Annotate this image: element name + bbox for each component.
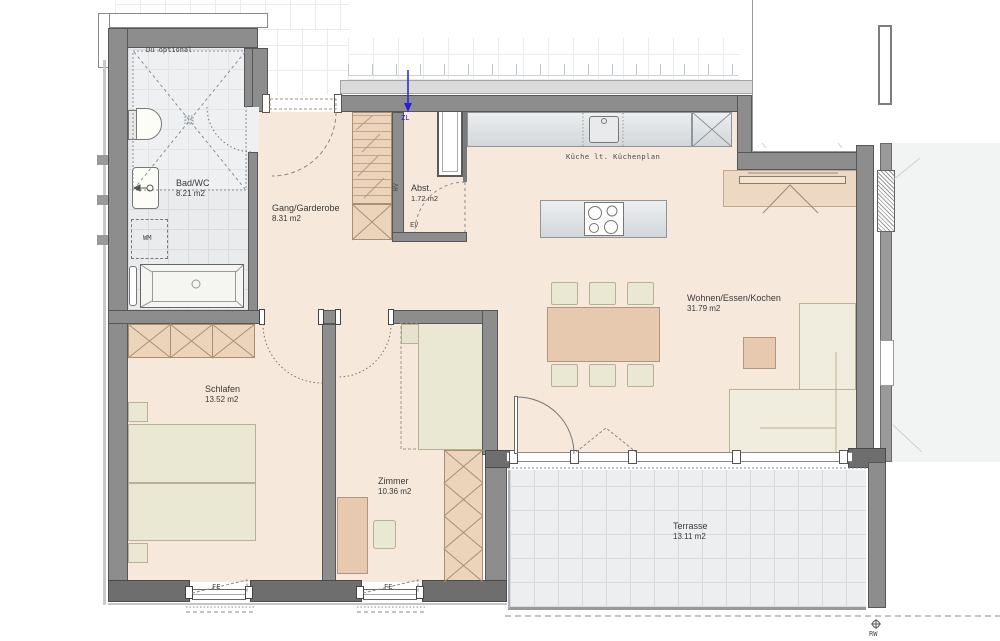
rw-symbol [871,619,881,629]
schlafen-wardrobe-3 [212,324,255,358]
fe-window-2-mid [363,594,417,595]
facade-edge-band [340,80,754,94]
glass-mullion [839,450,848,464]
floor-plan: Du optional Bad/WC 8.21 m2 WM Gang/Garde… [0,0,1000,641]
room-name: Bad/WC [176,178,210,189]
zimmer-door-post [335,309,341,325]
schlafen-door-opening [262,310,322,324]
room-name: Terrasse [673,521,708,532]
kitchen-counter [467,112,692,147]
bath-radiator [129,266,137,306]
wall-bottom-3 [422,580,507,602]
zimmer-door-opening [338,310,392,324]
nightstand [128,543,148,563]
gang-wardrobe-shelves [352,112,392,204]
entry-door-opening [266,95,338,112]
wall-right [856,145,874,465]
dining-table [547,307,660,362]
glass-mullion [732,450,741,464]
facade-tick-strip [348,64,738,76]
wall-abst-bottom [392,232,467,242]
recess-white [752,0,856,152]
room-area: 1.72 m2 [411,194,438,203]
desk [337,497,368,574]
kitchen-cabinet-x [692,112,732,147]
room-name: Zimmer [378,476,411,487]
zimmer-bed [418,322,484,450]
terrace-door-leaf [514,396,518,454]
entry-door-post-left [262,94,270,113]
sofa-seat [729,389,856,453]
double-bed-bottom [128,483,256,541]
room-area: 13.11 m2 [673,532,708,542]
schlafen-door-post [318,309,324,325]
bad-label: Bad/WC 8.21 m2 [176,178,210,199]
bathtub-inner [152,271,236,302]
kueche-label: Küche lt. Küchenplan [566,153,660,162]
bottom-facade-line [108,603,507,605]
fe-window-post [185,586,193,599]
gang-label: Gang/Garderobe 8.31 m2 [272,203,340,224]
rw-label: RW [869,630,877,639]
room-name: Abst. [411,183,438,194]
wm-label: WM [143,234,151,243]
room-name: Schlafen [205,384,240,395]
chair [627,364,654,387]
wall-recess-bottom [737,152,858,170]
fe2-label: FE [384,583,392,592]
du-optional-label: Du optional [146,46,192,55]
glass-mullion [628,450,637,464]
wall-interior-h-left [108,310,262,324]
fe-window-post [356,586,364,599]
entry-door-post-right [334,94,342,113]
double-bed-top [128,424,256,483]
schlafen-label: Schlafen 13.52 m2 [205,384,240,405]
neighbor-door-frame [880,340,894,386]
wall-recess-left [737,95,752,160]
fe-window-post [416,586,424,599]
room-area: 8.21 m2 [176,189,210,199]
coffee-table [743,337,776,369]
fe-window-post [245,586,253,599]
ev-label: EV [410,221,418,230]
schlafen-door-post [259,309,265,325]
room-area: 10.36 m2 [378,487,411,497]
abst-label: Abst. 1.72 m2 [411,183,438,204]
wohnen-label: Wohnen/Essen/Kochen 31.79 m2 [687,293,781,314]
wall-abst-right-thin [463,112,467,182]
hv-label: HV [392,183,401,191]
zl-label: ZL [401,114,409,123]
room-area: 31.79 m2 [687,304,781,314]
desk-chair [373,520,396,549]
schlafen-wardrobe-2 [170,324,213,358]
wall-abst-left [392,112,404,242]
nightstand [128,402,148,422]
terrasse-label: Terrasse 13.11 m2 [673,521,708,542]
gang-wardrobe-box [352,204,392,240]
glass-mullion [570,450,579,464]
neighbor-floor-right [892,143,1000,462]
chair [589,364,616,387]
cooktop [584,202,624,236]
wall-top-main [340,95,752,112]
room-area: 8.31 m2 [272,214,340,224]
parapet-top-left [104,13,268,28]
terrace-pier-right [868,462,886,608]
room-name: Wohnen/Essen/Kochen [687,293,781,304]
chair [551,282,578,305]
fe-window-1-mid [192,594,246,595]
fe1-label: FE [212,583,220,592]
wall-schlafen-zimmer [322,324,336,602]
wall-bottom-1 [108,580,190,602]
chair [627,282,654,305]
chair [589,282,616,305]
bath-door-opening [247,107,259,152]
wall-top-bath [108,28,258,48]
room-area: 13.52 m2 [205,395,240,405]
wall-zimmer-living [482,310,498,455]
wall-bath-right [248,152,258,312]
neighbor-wall-top-right [878,25,892,105]
neighbor-shaft-hatched [877,170,895,232]
kitchen-sink [589,116,619,143]
chair [551,364,578,387]
wall-bottom-2 [250,580,362,602]
left-facade-line [103,60,106,605]
glass-front [507,452,852,462]
schlafen-wardrobe-1 [128,324,171,358]
tv-sideboard [739,176,846,184]
ventilation-shaft-inner [442,111,458,172]
zimmer-wardrobe [444,450,483,582]
zimmer-door-post [388,309,394,325]
room-name: Gang/Garderobe [272,203,340,214]
washbasin [132,167,159,209]
zimmer-label: Zimmer 10.36 m2 [378,476,411,497]
zimmer-pillow [401,324,419,344]
